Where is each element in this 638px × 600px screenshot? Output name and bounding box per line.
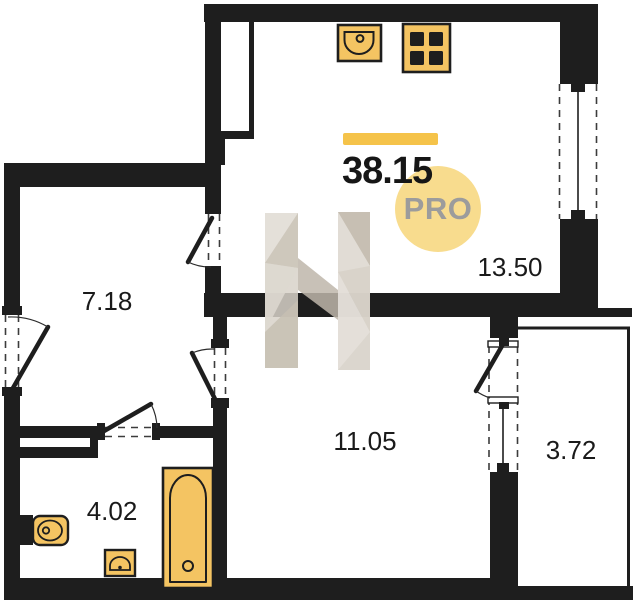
wall — [490, 472, 518, 580]
wall — [4, 396, 20, 600]
room-area-room: 11.05 — [320, 427, 410, 455]
h-logo-watermark — [265, 212, 370, 370]
wall — [204, 293, 598, 317]
door-jamb — [152, 423, 160, 440]
wall — [18, 426, 98, 438]
wall — [213, 408, 227, 578]
room-area-balcony: 3.72 — [526, 436, 616, 464]
wall — [4, 163, 20, 306]
wall-duct — [90, 426, 98, 458]
room-area-bathroom: 4.02 — [67, 497, 157, 525]
room-area-hallway: 7.18 — [62, 287, 152, 315]
entrance-door — [6, 315, 49, 388]
wall-shaft-border — [249, 22, 254, 139]
wall — [205, 139, 225, 165]
toilet-tank — [18, 515, 33, 545]
kitchen-sink-icon — [338, 25, 381, 61]
wall — [213, 317, 227, 339]
door-swing-arc — [192, 349, 214, 353]
door-jamb — [2, 306, 22, 315]
wall — [518, 586, 633, 600]
wall — [205, 275, 221, 297]
kitchen-door — [188, 214, 220, 267]
total-area-accent-bar — [343, 133, 438, 145]
door-jamb — [205, 203, 221, 214]
wall — [4, 578, 518, 600]
wall — [592, 308, 632, 317]
door-swing-arc — [476, 391, 490, 398]
door-jamb — [211, 339, 229, 348]
door-swing-arc — [8, 317, 48, 327]
wall — [560, 4, 598, 84]
washbasin-icon — [105, 550, 135, 576]
wall-shaft-border — [221, 131, 254, 139]
total-area-label: 38.15 — [342, 150, 432, 193]
wall — [204, 4, 598, 22]
wall — [4, 163, 220, 187]
toilet-icon — [18, 515, 68, 545]
bathtub-icon — [163, 468, 213, 588]
door-leaf — [104, 404, 151, 431]
room-area-kitchen-living: 13.50 — [465, 253, 555, 281]
door-leaf — [192, 353, 215, 399]
wall — [160, 426, 213, 438]
stove-icon — [403, 24, 450, 72]
bathroom-door — [104, 404, 157, 437]
wall-duct — [18, 447, 92, 458]
wall — [490, 317, 518, 338]
room-door — [192, 348, 226, 399]
floor-plan: PRO 38.15 7.18 13.50 11.05 4.02 3.72 — [0, 0, 638, 600]
kitchen-window — [560, 83, 597, 219]
